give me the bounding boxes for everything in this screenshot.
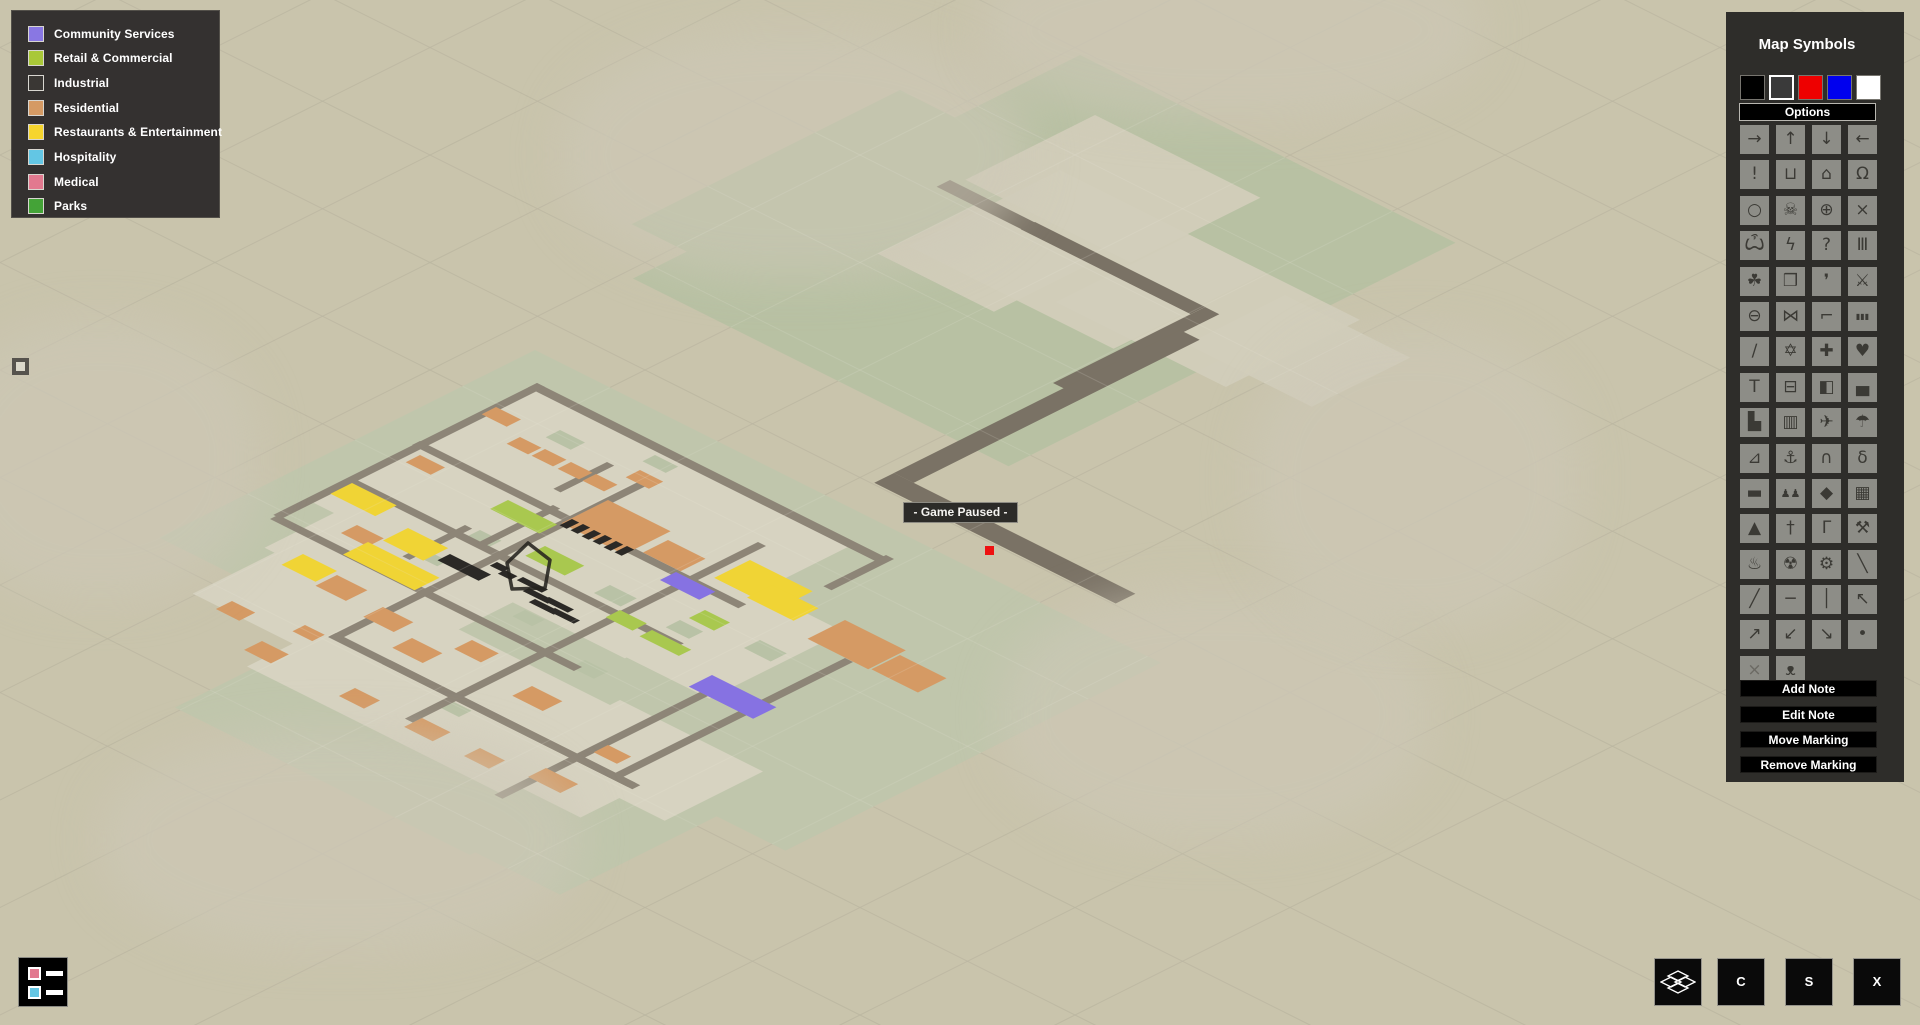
symbol-arrow-down-icon[interactable]: ↓: [1812, 125, 1841, 154]
symbol-apple-icon[interactable]: Ѽ: [1740, 231, 1769, 260]
legend-item-label: Community Services: [54, 27, 175, 41]
panel-title: Map Symbols: [1726, 36, 1888, 53]
symbol-vhs-tape-icon[interactable]: ⊟: [1776, 373, 1805, 402]
symbol-flame-icon[interactable]: ♨: [1740, 550, 1769, 579]
symbol-exclamation-icon[interactable]: !: [1740, 160, 1769, 189]
red-square-marking: [985, 546, 994, 555]
legend-item-label: Residential: [54, 101, 119, 115]
symbol-color-swatch[interactable]: [1856, 75, 1881, 100]
symbol-anchor-icon[interactable]: ⚓: [1776, 444, 1805, 473]
legend-color-swatch: [28, 174, 44, 190]
symbol-question-mark-icon[interactable]: ?: [1812, 231, 1841, 260]
symbol-wrench-icon[interactable]: ⚙: [1812, 550, 1841, 579]
iso-layers-icon: [1660, 969, 1696, 997]
symbol-radiation-icon[interactable]: ☢: [1776, 550, 1805, 579]
move-marking-button[interactable]: Move Marking: [1740, 731, 1877, 748]
symbol-color-swatch[interactable]: [1740, 75, 1765, 100]
symbol-circle-icon[interactable]: ○: [1740, 196, 1769, 225]
map-symbols-panel: Map Symbols Options →↑↓←!⊔⌂Ω○☠⊕×Ѽϟ?Ⅲ☘❒❜⚔…: [1726, 12, 1904, 782]
legend-item: Retail & Commercial: [28, 50, 173, 67]
legend-item-label: Retail & Commercial: [54, 51, 173, 65]
symbol-line-backslash-icon[interactable]: ╲: [1848, 550, 1877, 579]
legend-item: Hospitality: [28, 149, 116, 166]
symbol-target-icon[interactable]: ⊕: [1812, 196, 1841, 225]
symbol-arrow-right-icon[interactable]: →: [1740, 125, 1769, 154]
legend-item: Residential: [28, 99, 119, 116]
legend-toggle-button[interactable]: [18, 957, 68, 1007]
symbol-color-swatch[interactable]: [1769, 75, 1794, 100]
symbol-crossed-pickaxes-icon[interactable]: ⚒: [1848, 514, 1877, 543]
symbol-house-icon[interactable]: ⌂: [1812, 160, 1841, 189]
symbol-arrow-up-right-icon[interactable]: ↗: [1740, 620, 1769, 649]
legend-color-swatch: [28, 100, 44, 116]
symbol-jail-bars-icon[interactable]: Ⅲ: [1848, 231, 1877, 260]
symbol-hammer-icon[interactable]: Γ: [1812, 514, 1841, 543]
symbol-fork-and-knife-icon[interactable]: ⚔: [1848, 267, 1877, 296]
symbol-color-swatch[interactable]: [1798, 75, 1823, 100]
symbol-padlock-icon[interactable]: Ω: [1848, 160, 1877, 189]
symbol-heart-icon[interactable]: ♥: [1848, 337, 1877, 366]
symbol-sheriff-star-icon[interactable]: ✡: [1776, 337, 1805, 366]
symbol-bed-icon[interactable]: ▬: [1740, 479, 1769, 508]
symbol-people-group-icon[interactable]: ♟♟: [1776, 479, 1805, 508]
game-paused-text: - Game Paused -: [913, 505, 1007, 519]
legend-item: Community Services: [28, 25, 175, 42]
symbol-parachute-icon[interactable]: ☂: [1848, 408, 1877, 437]
button-c[interactable]: C: [1717, 958, 1765, 1006]
legend-color-swatch: [28, 198, 44, 214]
symbol-dot-icon[interactable]: •: [1848, 620, 1877, 649]
medical-mini-swatch: [28, 967, 41, 980]
iso-layers-button[interactable]: [1654, 958, 1702, 1006]
symbol-helmet-icon[interactable]: ∩: [1812, 444, 1841, 473]
symbol-t-shirt-icon[interactable]: T: [1740, 373, 1769, 402]
symbol-arrow-up-left-icon[interactable]: ↖: [1848, 585, 1877, 614]
symbol-line-vertical-icon[interactable]: │: [1812, 585, 1841, 614]
symbol-grave-icon[interactable]: †: [1776, 514, 1805, 543]
legend-item: Medical: [28, 173, 99, 190]
symbol-jerry-can-icon[interactable]: ▥: [1776, 408, 1805, 437]
legend-item-label: Hospitality: [54, 150, 116, 164]
symbol-skull-icon[interactable]: ☠: [1776, 196, 1805, 225]
mini-legend-line: [46, 971, 63, 976]
legend-item: Industrial: [28, 74, 109, 91]
symbol-car-icon[interactable]: ▄: [1848, 373, 1877, 402]
symbol-ammo-icon[interactable]: ▮▮▮: [1848, 302, 1877, 331]
legend-item: Restaurants & Entertainment: [28, 124, 222, 141]
symbol-truck-icon[interactable]: ▙: [1740, 408, 1769, 437]
options-button[interactable]: Options: [1739, 103, 1876, 121]
legend-item-label: Restaurants & Entertainment: [54, 125, 222, 139]
symbol-money-bag-icon[interactable]: δ: [1848, 444, 1877, 473]
symbol-medical-cross-icon[interactable]: ✚: [1812, 337, 1841, 366]
mini-legend-line: [46, 990, 63, 995]
edit-note-button[interactable]: Edit Note: [1740, 706, 1877, 723]
symbol-lightning-icon[interactable]: ϟ: [1776, 231, 1805, 260]
game-paused-tooltip: - Game Paused -: [903, 502, 1018, 523]
legend-item-label: Parks: [54, 199, 87, 213]
legend-color-swatch: [28, 26, 44, 42]
symbol-color-swatch[interactable]: [1827, 75, 1852, 100]
symbol-pistol-icon[interactable]: ⌐: [1812, 302, 1841, 331]
symbol-gas-pump-icon[interactable]: ◧: [1812, 373, 1841, 402]
hospitality-mini-swatch: [28, 986, 41, 999]
symbol-line-horizontal-icon[interactable]: ─: [1776, 585, 1805, 614]
symbol-arrow-down-left-icon[interactable]: ↙: [1776, 620, 1805, 649]
symbol-sailboat-icon[interactable]: ⊿: [1740, 444, 1769, 473]
symbol-helicopter-icon[interactable]: ✈: [1812, 408, 1841, 437]
symbol-nail-icon[interactable]: ∕: [1740, 337, 1769, 366]
symbol-warehouse-icon[interactable]: ▦: [1848, 479, 1877, 508]
remove-marking-button[interactable]: Remove Marking: [1740, 756, 1877, 773]
symbol-trash-can-icon[interactable]: ⊔: [1776, 160, 1805, 189]
legend-item-label: Industrial: [54, 76, 109, 90]
symbol-water-drop-icon[interactable]: ❜: [1812, 267, 1841, 296]
button-x[interactable]: X: [1853, 958, 1901, 1006]
symbol-crate-icon[interactable]: ❒: [1776, 267, 1805, 296]
legend-color-swatch: [28, 50, 44, 66]
legend-item-label: Medical: [54, 175, 99, 189]
legend-color-swatch: [28, 124, 44, 140]
symbol-arrow-down-right-icon[interactable]: ↘: [1812, 620, 1841, 649]
game-map-screen: - Game Paused - Community ServicesRetail…: [0, 0, 1920, 1025]
legend-item: Parks: [28, 198, 87, 215]
symbol-book-icon[interactable]: ⋈: [1776, 302, 1805, 331]
symbol-graduation-cap-icon[interactable]: ◆: [1812, 479, 1841, 508]
symbol-line-slash-icon[interactable]: ╱: [1740, 585, 1769, 614]
legend-color-swatch: [28, 149, 44, 165]
symbol-x-mark-icon[interactable]: ×: [1848, 196, 1877, 225]
legend-panel: Community ServicesRetail & CommercialInd…: [11, 10, 220, 218]
symbol-color-row: [1740, 75, 1881, 100]
symbol-grid: →↑↓←!⊔⌂Ω○☠⊕×Ѽϟ?Ⅲ☘❒❜⚔⊖⋈⌐▮▮▮∕✡✚♥T⊟◧▄▙▥✈☂⊿⚓…: [1740, 125, 1877, 685]
map-selection-marker: [12, 358, 29, 375]
add-note-button[interactable]: Add Note: [1740, 680, 1877, 697]
symbol-tent-icon[interactable]: ▲: [1740, 514, 1769, 543]
button-s[interactable]: S: [1785, 958, 1833, 1006]
legend-color-swatch: [28, 75, 44, 91]
symbol-arrow-left-icon[interactable]: ←: [1848, 125, 1877, 154]
symbol-arrow-up-icon[interactable]: ↑: [1776, 125, 1805, 154]
symbol-falling-leaves-icon[interactable]: ☘: [1740, 267, 1769, 296]
symbol-pill-icon[interactable]: ⊖: [1740, 302, 1769, 331]
